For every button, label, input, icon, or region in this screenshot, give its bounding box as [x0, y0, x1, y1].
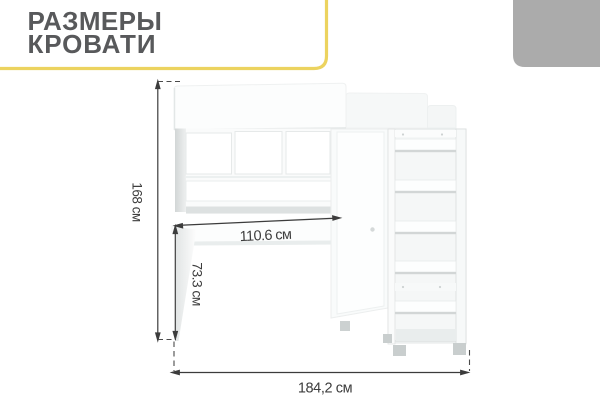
svg-text:184,2 см: 184,2 см: [298, 381, 352, 397]
svg-text:КРОВАТИ: КРОВАТИ: [28, 29, 157, 59]
svg-text:73.3 см: 73.3 см: [190, 262, 206, 306]
svg-text:110.6 см: 110.6 см: [239, 227, 291, 245]
svg-text:168 см: 168 см: [130, 182, 145, 222]
